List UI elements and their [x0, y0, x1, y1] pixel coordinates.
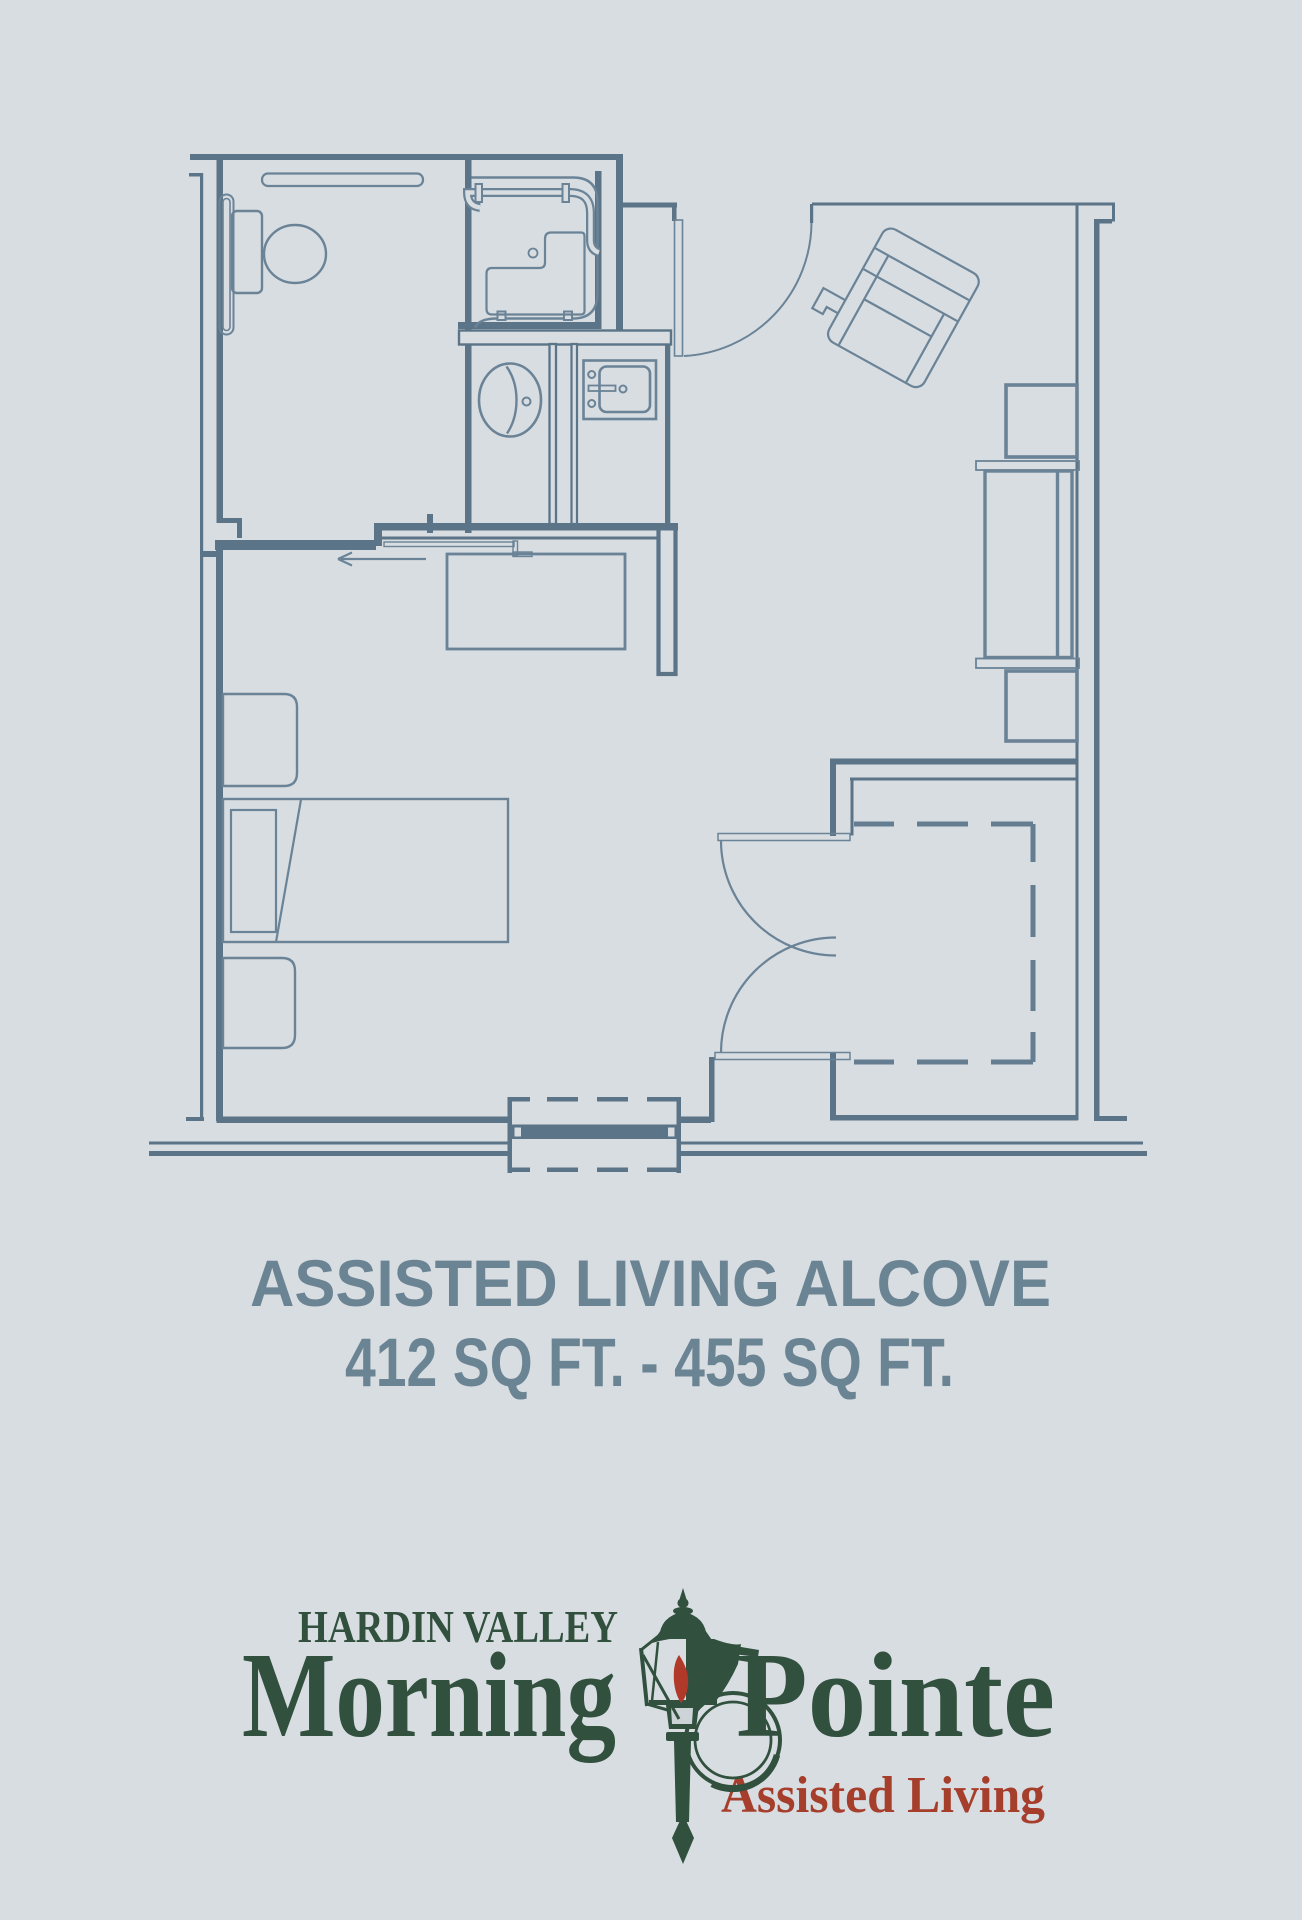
svg-text:Assisted Living: Assisted Living	[721, 1767, 1045, 1824]
svg-text:Morning: Morning	[242, 1628, 616, 1763]
svg-text:ASSISTED LIVING ALCOVE: ASSISTED LIVING ALCOVE	[250, 1246, 1051, 1320]
svg-text:Pointe: Pointe	[736, 1628, 1055, 1763]
svg-text:412 SQ FT. - 455 SQ FT.: 412 SQ FT. - 455 SQ FT.	[345, 1324, 954, 1401]
